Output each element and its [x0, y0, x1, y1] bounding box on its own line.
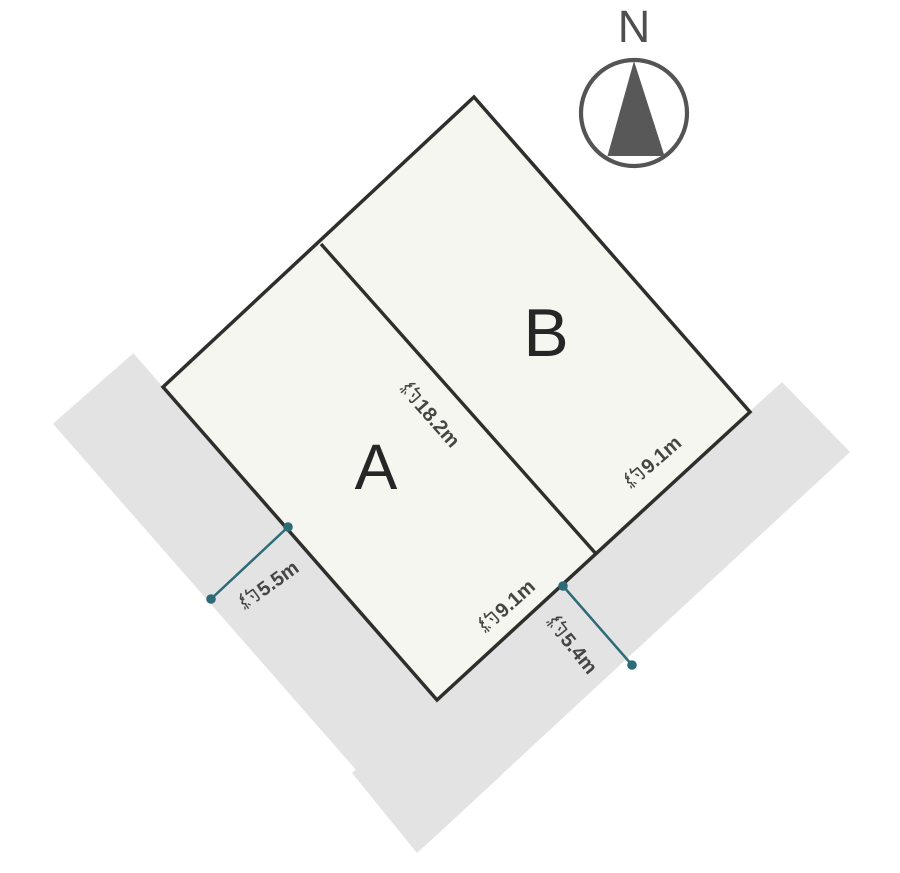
svg-text:N: N	[618, 1, 651, 52]
svg-text:A: A	[355, 431, 398, 503]
svg-text:B: B	[523, 295, 568, 371]
